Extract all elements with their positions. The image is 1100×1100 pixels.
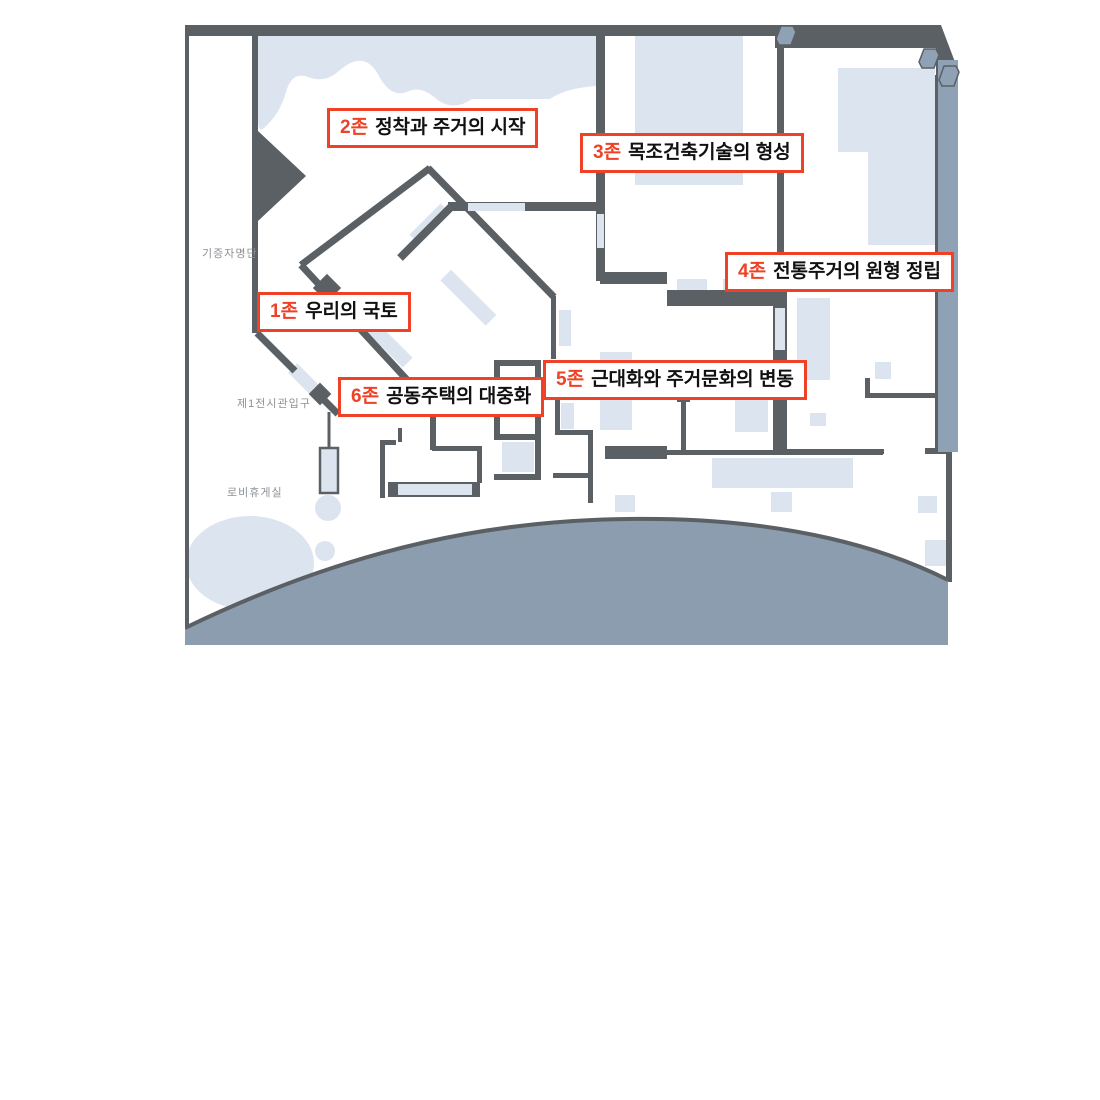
right-lower-wall (946, 452, 952, 582)
zone2-label: 2존 정착과 주거의 시작 (327, 108, 538, 148)
zone5-wall (551, 296, 556, 359)
zone6-wall (477, 447, 482, 483)
wall-stub (398, 428, 402, 442)
zone5-number: 5존 (556, 369, 584, 392)
zone4-label: 4존 전통주거의 원형 정립 (725, 252, 954, 292)
zone4-exhibit-area (838, 68, 935, 245)
door-panel (775, 308, 785, 350)
door-panel (561, 403, 574, 429)
museum-floor-plan-page: 1존 우리의 국토 2존 정착과 주거의 시작 3존 목조건축기술의 형성 4존… (0, 0, 1100, 1100)
zone5-thick-wall (605, 446, 667, 459)
entrance-diagonal-wall (257, 333, 295, 371)
lobby-lounge-label: 로비휴게실 (227, 484, 283, 500)
zone5-wall (555, 399, 560, 433)
zone2-name: 정착과 주거의 시작 (375, 117, 525, 140)
zone5-bottom-wall (667, 450, 883, 455)
door-panel (597, 214, 604, 248)
zone4-wall (865, 393, 940, 398)
zone4-tint (875, 362, 891, 379)
zone4-tint (810, 413, 826, 426)
zone6-room-wall (494, 360, 540, 366)
zone6-wall (432, 446, 482, 451)
zone6-wall (380, 441, 385, 498)
lobby-blob (315, 495, 341, 521)
donor-list-label: 기증자명단 (202, 245, 258, 261)
corridor-wall (252, 36, 258, 333)
zone4-tint (925, 540, 948, 566)
zone1-number: 1존 (270, 301, 298, 324)
zone3-label: 3존 목조건축기술의 형성 (580, 133, 804, 173)
zone5-wall (681, 399, 686, 452)
zone6-tint (502, 442, 534, 472)
zone4-number: 4존 (738, 261, 766, 284)
zone5-wall (555, 430, 593, 435)
outer-wall-left (185, 25, 189, 628)
door-panel (468, 203, 525, 211)
zone4-tint (918, 496, 937, 513)
zone2-diagonal-wall (400, 206, 452, 258)
zone5-label: 5존 근대화와 주거문화의 변동 (543, 360, 807, 400)
zone6-name: 공동주택의 대중화 (386, 386, 531, 409)
outer-wall-top (185, 25, 775, 36)
zone5-tint (615, 495, 635, 512)
lobby-blob (315, 541, 335, 561)
zone5-tint (771, 492, 792, 512)
door-panel (398, 484, 472, 495)
zone1-label: 1존 우리의 국토 (257, 292, 411, 332)
outer-wall-top-right (775, 25, 935, 48)
zone2-number: 2존 (340, 117, 368, 140)
door-panel-diagonal (440, 270, 496, 326)
floor-plan-svg (185, 25, 960, 645)
zone4-wall (865, 378, 870, 394)
zone5-wall (553, 473, 593, 478)
zone5-name: 근대화와 주거문화의 변동 (591, 369, 794, 392)
zone6-room-wall (494, 434, 540, 440)
door-panel (677, 279, 707, 290)
zone6-room-wall (494, 474, 540, 480)
zone1-name: 우리의 국토 (305, 301, 398, 324)
kiosk-fixture (320, 448, 338, 493)
zone3-number: 3존 (593, 142, 621, 165)
door-panel (559, 310, 571, 346)
direction-triangle (258, 131, 306, 221)
zone5-tint (712, 458, 853, 488)
zone6-label: 6존 공동주택의 대중화 (338, 377, 544, 417)
zone4-tint (735, 398, 768, 432)
hall1-entrance-label: 제1전시관입구 (237, 395, 311, 411)
zone6-number: 6존 (351, 386, 379, 409)
zone3-name: 목조건축기술의 형성 (628, 142, 791, 165)
zone5-wall (588, 430, 593, 503)
zone3-bottom-wall (600, 272, 667, 284)
zone3-bottom-wall (667, 290, 787, 306)
zone4-name: 전통주거의 원형 정립 (773, 261, 941, 284)
